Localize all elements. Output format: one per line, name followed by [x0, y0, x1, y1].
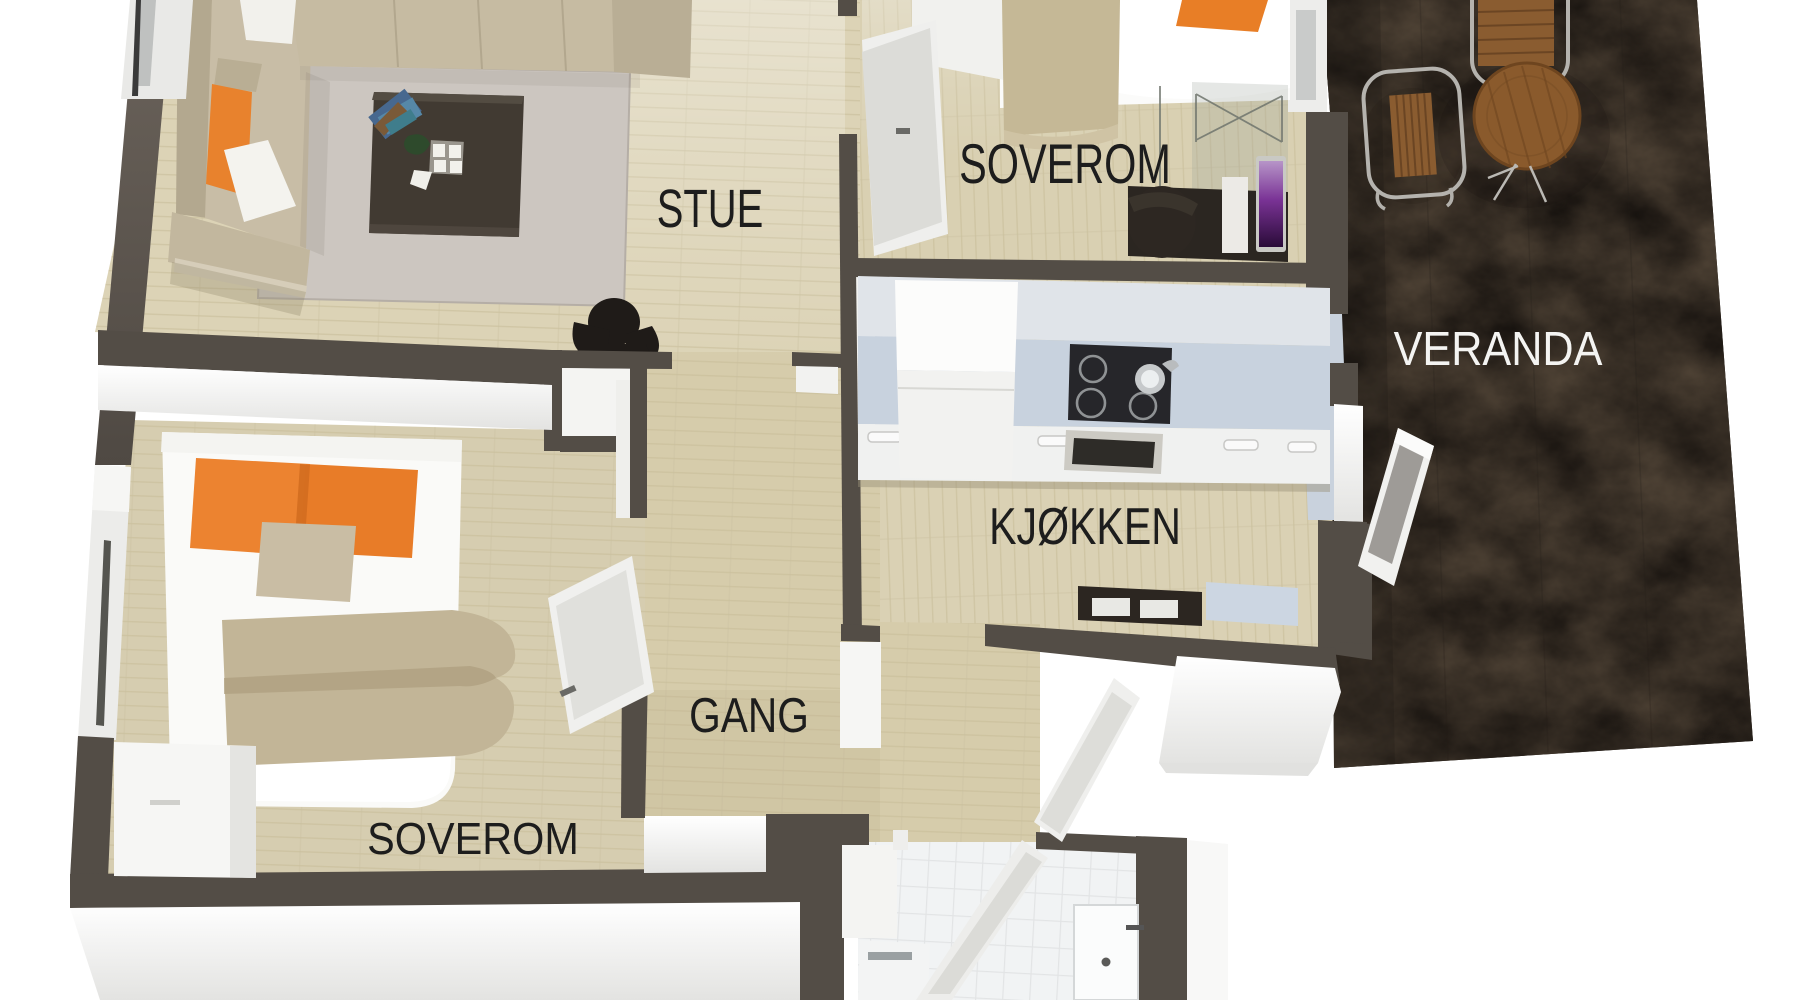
svg-text:GANG: GANG [689, 689, 809, 743]
svg-text:SOVEROM: SOVEROM [959, 132, 1171, 195]
svg-text:SOVEROM: SOVEROM [367, 813, 579, 864]
svg-text:KJØKKEN: KJØKKEN [989, 498, 1181, 556]
svg-text:STUE: STUE [657, 179, 764, 239]
svg-text:VERANDA: VERANDA [1394, 323, 1603, 376]
